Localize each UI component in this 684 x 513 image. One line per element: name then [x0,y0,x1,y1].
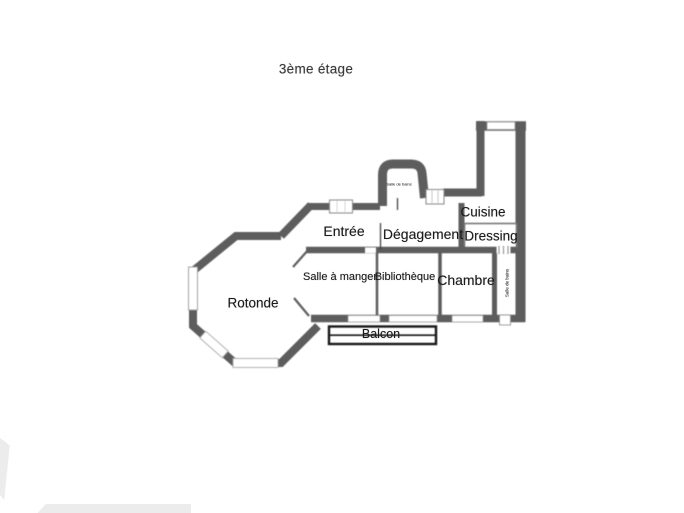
room-label-rotonde: Rotonde [227,296,278,311]
room-label-dressing: Dressing [464,229,517,244]
room-label-bibliotheque: Bibliothèque [375,271,436,283]
floor-plan-drawing [0,0,684,513]
room-label-degagement: Dégagement [383,226,463,242]
room-label-entree: Entrée [323,223,364,239]
room-label-small-room: Salle de bains [386,182,411,187]
room-label-cuisine: Cuisine [460,205,505,220]
room-label-salle-de-bains: Salle de bains [505,269,510,297]
room-label-balcon: Balcon [362,327,400,341]
floor-plan-page: 3ème étage Rotonde Entrée Dégagement Cui… [0,0,684,513]
room-label-salle-a-manger: Salle à manger [303,271,377,283]
room-label-chambre: Chambre [437,272,495,288]
floor-title: 3ème étage [279,62,353,77]
